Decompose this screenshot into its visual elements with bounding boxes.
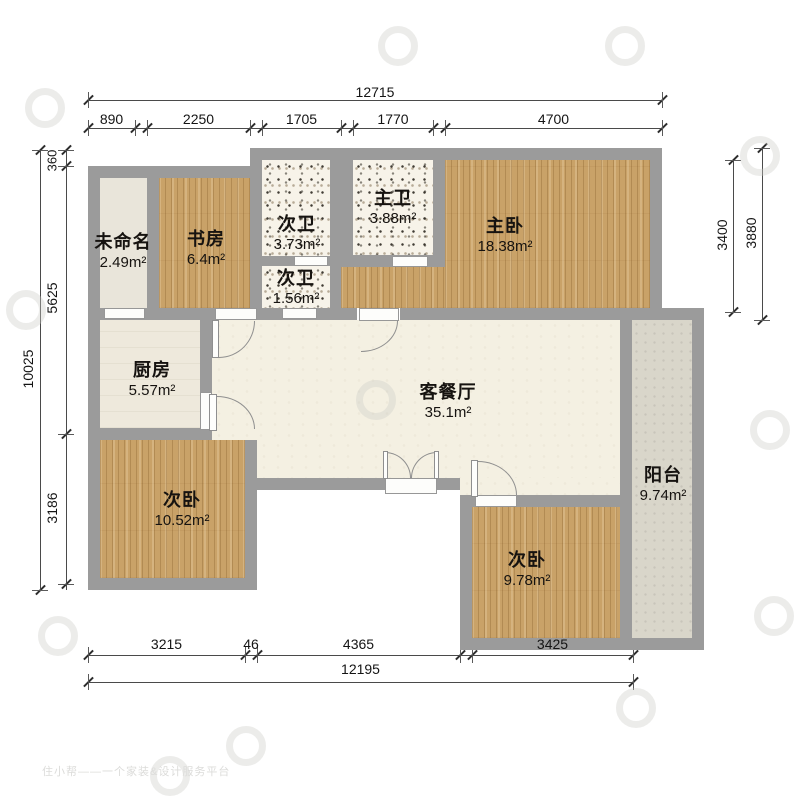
floor-plan: 未命名 2.49m² 书房 6.4m² 次卫 3.73m² 次卫 1.56m² … (0, 0, 800, 800)
wall (200, 320, 212, 392)
brand-logo-watermark-icon (750, 410, 790, 450)
room-label-master: 主卧 18.38m² (477, 216, 532, 257)
room-name: 厨房 (129, 360, 176, 381)
dimension-line (733, 160, 734, 312)
bedroom-right-door-leaf (471, 460, 478, 497)
wall (250, 148, 662, 160)
bath-second-door-threshold (294, 256, 328, 266)
room-area: 3.73m² (274, 235, 321, 255)
room-area: 6.4m² (187, 250, 225, 270)
dim-bottom-seg-3425: 3425 (472, 636, 633, 652)
room-area: 10.52m² (154, 511, 209, 531)
room-label-bath-master: 主卫 3.88m² (370, 188, 417, 229)
brand-logo-watermark-icon (6, 290, 46, 330)
brand-logo-watermark-icon (754, 596, 794, 636)
brand-logo-watermark-icon (226, 726, 266, 766)
dim-right-seg-3400: 3400 (714, 203, 730, 267)
room-master-corridor-floor (341, 267, 445, 308)
wall (650, 148, 662, 315)
dim-left-seg-360: 360 (45, 129, 60, 193)
wall (88, 166, 100, 590)
room-area: 35.1m² (420, 403, 477, 423)
wall (88, 166, 262, 178)
brand-logo-watermark-icon (38, 616, 78, 656)
room-name: 客餐厅 (420, 382, 477, 403)
room-living-floor (212, 320, 620, 440)
wall (88, 578, 257, 590)
brand-logo-watermark-icon (605, 26, 645, 66)
brand-logo-watermark-icon (25, 88, 65, 128)
room-area: 2.49m² (95, 253, 152, 273)
dim-bottom-seg-3215: 3215 (88, 636, 245, 652)
room-label-unnamed: 未命名 2.49m² (95, 232, 152, 273)
room-name: 次卧 (504, 550, 551, 571)
unnamed-door-threshold (104, 308, 145, 319)
room-name: 未命名 (95, 232, 152, 253)
dimension-line (40, 150, 41, 590)
brand-logo-watermark-icon (378, 26, 418, 66)
dim-bottom-seg-4365: 4365 (257, 636, 460, 652)
dim-left-overall: 10025 (20, 337, 36, 401)
room-name: 次卫 (273, 268, 320, 289)
room-area: 9.78m² (504, 571, 551, 591)
dimension-line (88, 100, 662, 101)
room-label-bedroom-right: 次卧 9.78m² (504, 550, 551, 591)
double-door-leaf-right (434, 451, 439, 479)
dim-top-seg-1705: 1705 (262, 111, 341, 127)
dim-right-seg-3880: 3880 (743, 201, 759, 265)
kitchen-door-leaf (209, 394, 217, 431)
room-label-bedroom-left: 次卧 10.52m² (154, 490, 209, 531)
dimension-line (88, 682, 633, 683)
hall-door-threshold (215, 308, 257, 320)
room-area: 1.56m² (273, 289, 320, 309)
double-door-leaf-left (383, 451, 388, 479)
dim-top-seg-2250: 2250 (147, 111, 250, 127)
dimension-tick (754, 320, 770, 321)
room-name: 阳台 (640, 465, 687, 486)
wall (692, 320, 704, 638)
dimension-line (88, 655, 633, 656)
wall (517, 495, 632, 507)
dim-top-seg-890: 890 (88, 111, 135, 127)
dimension-tick (725, 312, 741, 313)
dim-top-seg-1770: 1770 (353, 111, 433, 127)
dimension-tick (662, 120, 663, 136)
bedroom-right-door-threshold (475, 495, 517, 507)
dim-left-seg-3186: 3186 (44, 476, 60, 540)
brand-logo-watermark-icon (356, 380, 396, 420)
dimension-tick (32, 590, 48, 591)
room-area: 5.57m² (129, 381, 176, 401)
room-label-balcony: 阳台 9.74m² (640, 465, 687, 506)
room-name: 书房 (187, 229, 225, 250)
room-area: 3.88m² (370, 209, 417, 229)
brand-logo-watermark-icon (740, 136, 780, 176)
wall (433, 160, 445, 267)
dimension-line (88, 128, 662, 129)
dim-top-overall: 12715 (88, 84, 662, 100)
dim-left-seg-5625: 5625 (44, 266, 60, 330)
double-door-threshold (385, 478, 437, 494)
wall (620, 320, 632, 638)
dim-top-seg-4700: 4700 (445, 111, 662, 127)
room-label-living: 客餐厅 35.1m² (420, 382, 477, 423)
room-label-study: 书房 6.4m² (187, 229, 225, 270)
wall (245, 478, 472, 490)
room-area: 9.74m² (640, 486, 687, 506)
room-name: 主卫 (370, 188, 417, 209)
hall-door-leaf (212, 320, 219, 358)
room-name: 次卫 (274, 214, 321, 235)
master-door-leaf (359, 308, 399, 321)
room-label-kitchen: 厨房 5.57m² (129, 360, 176, 401)
room-master-floor (445, 160, 650, 308)
room-name: 主卧 (477, 216, 532, 237)
dim-bottom-overall: 12195 (88, 661, 633, 677)
brand-logo-watermark-icon (616, 688, 656, 728)
room-area: 18.38m² (477, 237, 532, 257)
room-label-bath-second-upper: 次卫 3.73m² (274, 214, 321, 255)
bath-master-door-threshold (392, 256, 428, 267)
wall (330, 160, 353, 267)
dimension-tick (662, 92, 663, 108)
room-name: 次卧 (154, 490, 209, 511)
watermark-text: 住小帮——一个家装&设计服务平台 (42, 763, 230, 779)
wall (460, 478, 472, 650)
dimension-line (66, 150, 67, 590)
room-label-bath-second-lower: 次卫 1.56m² (273, 268, 320, 309)
wall (245, 428, 257, 590)
wall (250, 178, 262, 308)
bath-second-lower-door-threshold (282, 308, 317, 319)
